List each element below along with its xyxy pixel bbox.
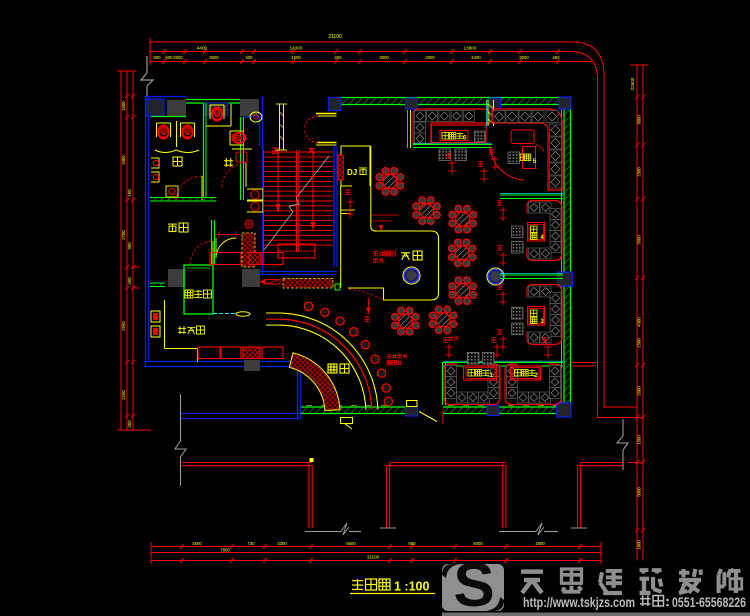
svg-text:1800: 1800 xyxy=(535,541,545,546)
svg-text:690: 690 xyxy=(408,541,416,546)
svg-text:900: 900 xyxy=(127,242,132,250)
svg-text:5000: 5000 xyxy=(473,541,483,546)
svg-text:5: 5 xyxy=(533,158,537,165)
svg-text:2600: 2600 xyxy=(637,386,642,396)
svg-text:6: 6 xyxy=(463,135,467,142)
svg-text:2400: 2400 xyxy=(471,55,481,60)
svg-text:450: 450 xyxy=(552,55,560,60)
svg-text:2950: 2950 xyxy=(121,321,126,331)
svg-text:4500: 4500 xyxy=(192,541,202,546)
svg-text:1500: 1500 xyxy=(291,55,301,60)
svg-text:S: S xyxy=(453,551,494,616)
svg-text:3000: 3000 xyxy=(637,115,642,125)
svg-text:450: 450 xyxy=(334,55,342,60)
svg-text:1800: 1800 xyxy=(637,540,642,550)
svg-text:450: 450 xyxy=(127,420,132,428)
svg-text:450: 450 xyxy=(127,277,132,285)
svg-text:1500: 1500 xyxy=(637,338,642,348)
svg-text:2500: 2500 xyxy=(637,167,642,177)
svg-text:7800: 7800 xyxy=(220,548,230,553)
svg-text:1500: 1500 xyxy=(637,435,642,445)
svg-text:3000: 3000 xyxy=(379,55,389,60)
svg-text:3600: 3600 xyxy=(209,55,219,60)
svg-text:1 :100: 1 :100 xyxy=(394,580,429,594)
svg-text:21100: 21100 xyxy=(328,34,342,40)
svg-text:3900: 3900 xyxy=(637,235,642,245)
svg-text:1: 1 xyxy=(489,372,493,379)
svg-text:900: 900 xyxy=(153,55,161,60)
svg-text:22600: 22600 xyxy=(630,77,635,90)
svg-text:http://www.tskjzs.com: http://www.tskjzs.com xyxy=(523,595,635,610)
svg-text:2000: 2000 xyxy=(173,55,183,60)
svg-text:5000: 5000 xyxy=(637,487,642,497)
svg-text:2150: 2150 xyxy=(121,390,126,400)
svg-text:13800: 13800 xyxy=(464,46,477,51)
svg-text:2700: 2700 xyxy=(121,230,126,240)
svg-text:5600: 5600 xyxy=(346,541,356,546)
svg-text:DJ: DJ xyxy=(347,168,357,177)
svg-text:3300: 3300 xyxy=(425,55,435,60)
svg-text:1500: 1500 xyxy=(121,101,126,111)
svg-text:730: 730 xyxy=(247,541,255,546)
svg-text:0551-65568226: 0551-65568226 xyxy=(672,595,746,610)
svg-text:3000: 3000 xyxy=(519,55,529,60)
svg-text:4300: 4300 xyxy=(637,317,642,327)
svg-text:4400: 4400 xyxy=(197,46,208,51)
svg-text:14300: 14300 xyxy=(290,46,303,51)
svg-text:3300: 3300 xyxy=(277,541,287,546)
svg-text:400: 400 xyxy=(245,55,253,60)
svg-text:31100: 31100 xyxy=(367,555,380,560)
svg-text:3300: 3300 xyxy=(121,155,126,165)
svg-text:2: 2 xyxy=(534,372,538,379)
svg-text:150: 150 xyxy=(127,189,132,197)
svg-text:600: 600 xyxy=(165,55,173,60)
